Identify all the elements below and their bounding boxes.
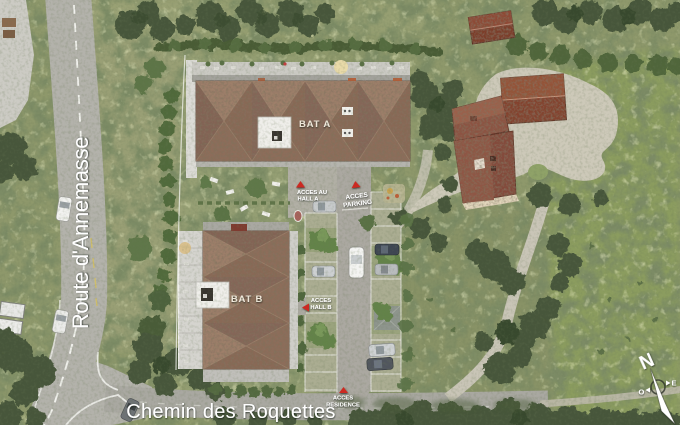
svg-text:ACCES AU: ACCES AU [297,190,327,196]
svg-text:HALL B: HALL B [310,305,331,311]
svg-text:O: O [639,388,645,397]
svg-text:Route d'Annemasse: Route d'Annemasse [68,137,93,329]
svg-text:ACCES: ACCES [311,298,331,304]
svg-text:ACCES: ACCES [333,396,353,402]
svg-text:HALL A: HALL A [298,197,320,203]
svg-text:E: E [672,379,677,388]
svg-text:Chemin des Roquettes: Chemin des Roquettes [126,401,335,423]
